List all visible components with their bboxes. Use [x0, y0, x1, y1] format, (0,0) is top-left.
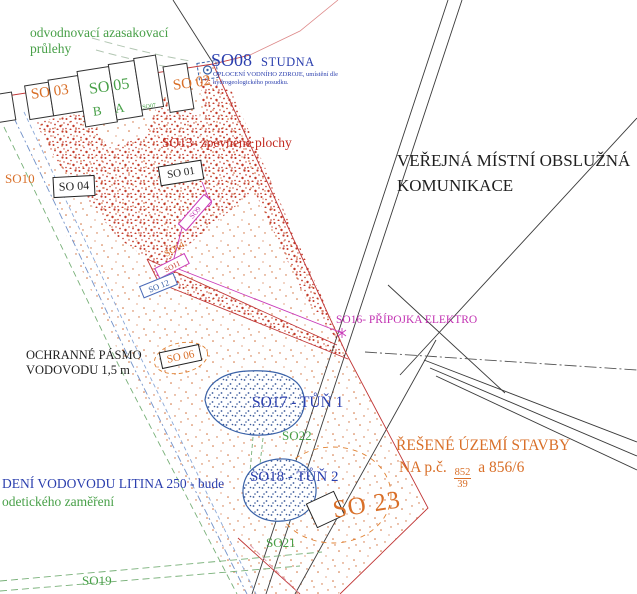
so21-label: SO21: [266, 536, 296, 550]
area-prefix: NA p.č.: [399, 459, 447, 476]
road-label-line1: VEŘEJNÁ MÍSTNÍ OBSLUŽNÁ: [397, 152, 630, 171]
pond1-label: SO17 - TŮŇ 1: [252, 394, 343, 411]
area-fraction-denominator: 39: [457, 479, 468, 490]
area-fraction-numerator: 852: [454, 467, 472, 479]
so04-box: SO 04: [52, 175, 95, 198]
well-code: SO08: [211, 50, 252, 70]
so19-label: SO19: [82, 574, 112, 588]
pond2-label: SO18 - TŮŇ 2: [250, 469, 338, 486]
area-fraction: 852 39: [454, 467, 472, 490]
so01-label: SO 01: [166, 165, 195, 181]
swales-label-line1: odvodnovací azasakovací: [30, 26, 168, 41]
so13-label: SO13- zpevněné plochy: [162, 136, 292, 151]
so05-b-label: B: [92, 104, 103, 119]
site-plan-drawing: SO 04 SO 01 SO 06 SO9 SO11 SO 12 odvodno…: [0, 0, 637, 594]
well-note-line1: OPLOCENÍ VODNÍHO ZDROJE, umístění dle: [213, 71, 338, 78]
well-title: SO08 STUDNA: [211, 51, 315, 71]
swales-label-line2: průlehy: [30, 42, 71, 57]
well-note-line2: hydrogeologického posudku.: [213, 79, 288, 86]
so16-label: SO16- PŘÍPOJKA ELEKTRO: [336, 314, 477, 327]
area-label-line1: ŘEŠENÉ ÚZEMÍ STAVBY: [396, 437, 570, 454]
well-name: STUDNA: [261, 55, 315, 69]
so05-a-label: A: [114, 101, 125, 116]
so06-label: SO 06: [166, 348, 196, 366]
area-suffix: a 856/6: [478, 459, 524, 476]
pasmo-label-line2: VODOVODU 1,5 m: [26, 364, 130, 378]
area-label-line2: NA p.č. 852 39 a 856/6: [399, 459, 524, 487]
so04-label: SO 04: [58, 178, 89, 195]
pasmo-label-line1: OCHRANNÉ PÁSMO: [26, 349, 142, 363]
so10-label: SO10: [5, 172, 35, 186]
so22-label: SO22: [282, 429, 312, 443]
vodovod-label-line1: DENÍ VODOVODU LITINA 250 - bude: [2, 477, 224, 492]
vodovod-label-line2: odetického zaměření: [2, 495, 114, 510]
road-label-line2: KOMUNIKACE: [397, 177, 513, 196]
